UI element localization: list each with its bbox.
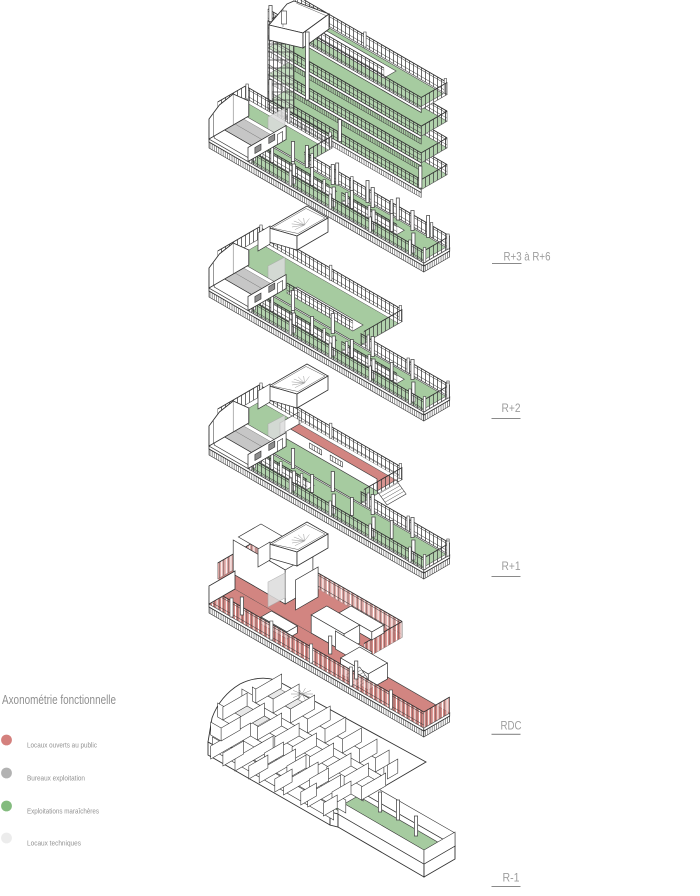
- svg-text:R+3 à R+6: R+3 à R+6: [504, 250, 551, 264]
- svg-text:Exploitations maraîchères: Exploitations maraîchères: [27, 806, 99, 815]
- svg-text:Bureaux exploitation: Bureaux exploitation: [27, 773, 85, 782]
- svg-text:Axonométrie fonctionnelle: Axonométrie fonctionnelle: [2, 692, 116, 707]
- svg-text:RDC: RDC: [501, 719, 522, 733]
- svg-text:R+2: R+2: [502, 401, 521, 415]
- svg-text:Locaux techniques: Locaux techniques: [27, 838, 81, 847]
- svg-text:R-1: R-1: [503, 871, 520, 885]
- svg-text:R+1: R+1: [502, 559, 521, 573]
- svg-text:Locaux ouverts au public: Locaux ouverts au public: [27, 740, 97, 749]
